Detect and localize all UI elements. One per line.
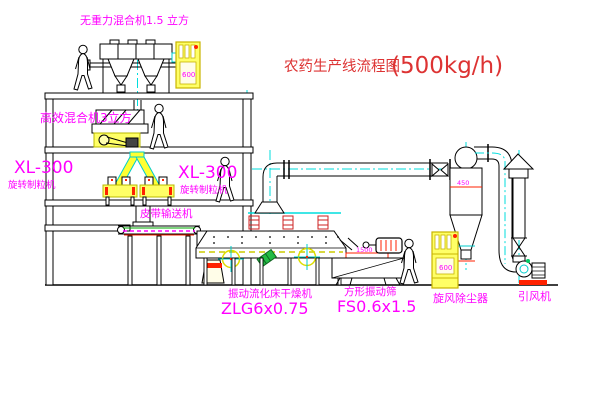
label-granulator-right-model: XL-300: [178, 163, 237, 183]
label-sieve-inlet-dim: 1500: [356, 246, 373, 254]
belt-conveyor: [118, 226, 201, 285]
label-cyclone: 旋风除尘器: [433, 291, 488, 305]
label-cyclone-dim: 450: [457, 179, 469, 187]
exhaust-stack: [504, 154, 533, 262]
label-top-mixer: 无重力混合机1.5 立方: [80, 13, 189, 27]
label-fan: 引风机: [518, 289, 551, 303]
drawing-title: 农药生产线流程图: [284, 58, 400, 75]
indicator-dot: [194, 45, 198, 49]
drawing-title-capacity: (500kg/h): [391, 53, 503, 79]
person-icon: [150, 104, 168, 149]
person-icon: [74, 45, 92, 90]
process-flow-drawing: 600: [0, 0, 600, 403]
label-sieve-model: FS0.6x1.5: [337, 297, 416, 316]
indicator-dot: [453, 234, 457, 238]
damper-valve: [432, 164, 439, 176]
induced-draft-fan: [516, 259, 547, 285]
label-granulator-left-model: XL-300: [14, 158, 73, 178]
label-mid-mixer: 高效混合机3立方: [40, 110, 132, 125]
control-cabinet-bottom: 600: [432, 232, 458, 288]
rain-cap: [504, 154, 533, 169]
cad-diagram: 600: [0, 0, 600, 403]
exhaust-duct: [255, 159, 450, 213]
label-granulator-right-name: 旋转制粒机: [180, 184, 228, 196]
control-cabinet-top: 600: [176, 42, 200, 88]
label-granulator-left-name: 旋转制粒机: [8, 179, 56, 191]
label-dryer-model: ZLG6x0.75: [221, 299, 309, 318]
label-belt-conveyor: 皮带输送机: [140, 207, 193, 220]
cabinet-bottom-mark: 600: [439, 264, 452, 272]
cabinet-top-mark: 600: [182, 71, 195, 79]
